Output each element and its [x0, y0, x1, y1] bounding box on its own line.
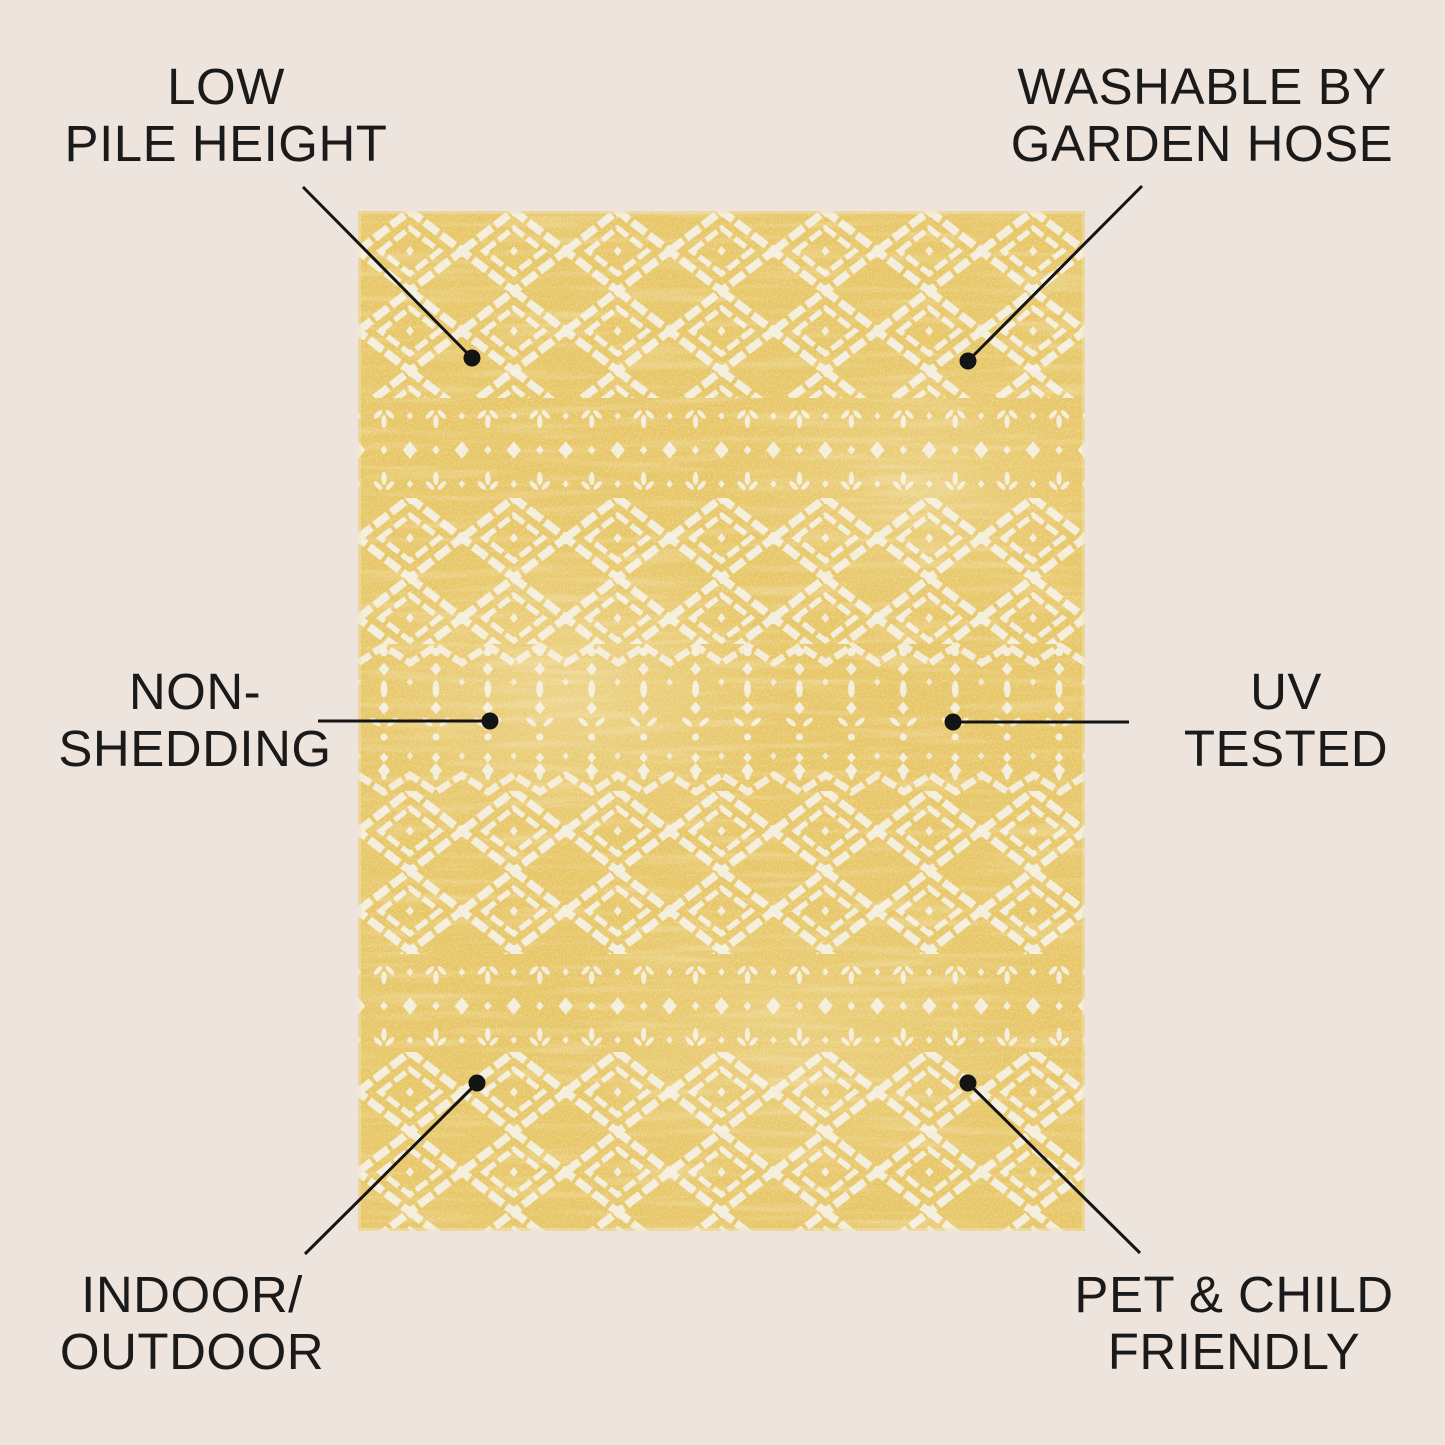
callout-washable-by-garden-hose: WASHABLE BY GARDEN HOSE	[1011, 58, 1393, 172]
callout-text-line: NON-	[58, 663, 331, 720]
rug-features-infographic: LOW PILE HEIGHT WASHABLE BY GARDEN HOSE …	[0, 0, 1445, 1445]
callout-text-line: WASHABLE BY	[1011, 58, 1393, 115]
callout-text-line: FRIENDLY	[1074, 1323, 1393, 1380]
callout-indoor-outdoor: INDOOR/ OUTDOOR	[60, 1266, 324, 1380]
rug-image	[358, 211, 1085, 1231]
callout-non-shedding: NON- SHEDDING	[58, 663, 331, 777]
callout-text-line: PET & CHILD	[1074, 1266, 1393, 1323]
callout-low-pile-height: LOW PILE HEIGHT	[65, 58, 388, 172]
callout-text-line: UV	[1184, 663, 1388, 720]
callout-text-line: TESTED	[1184, 720, 1388, 777]
callout-text-line: OUTDOOR	[60, 1323, 324, 1380]
callout-text-line: GARDEN HOSE	[1011, 115, 1393, 172]
callout-text-line: PILE HEIGHT	[65, 115, 388, 172]
callout-pet-child-friendly: PET & CHILD FRIENDLY	[1074, 1266, 1393, 1380]
callout-text-line: LOW	[65, 58, 388, 115]
callout-uv-tested: UV TESTED	[1184, 663, 1388, 777]
callout-text-line: INDOOR/	[60, 1266, 324, 1323]
callout-text-line: SHEDDING	[58, 720, 331, 777]
